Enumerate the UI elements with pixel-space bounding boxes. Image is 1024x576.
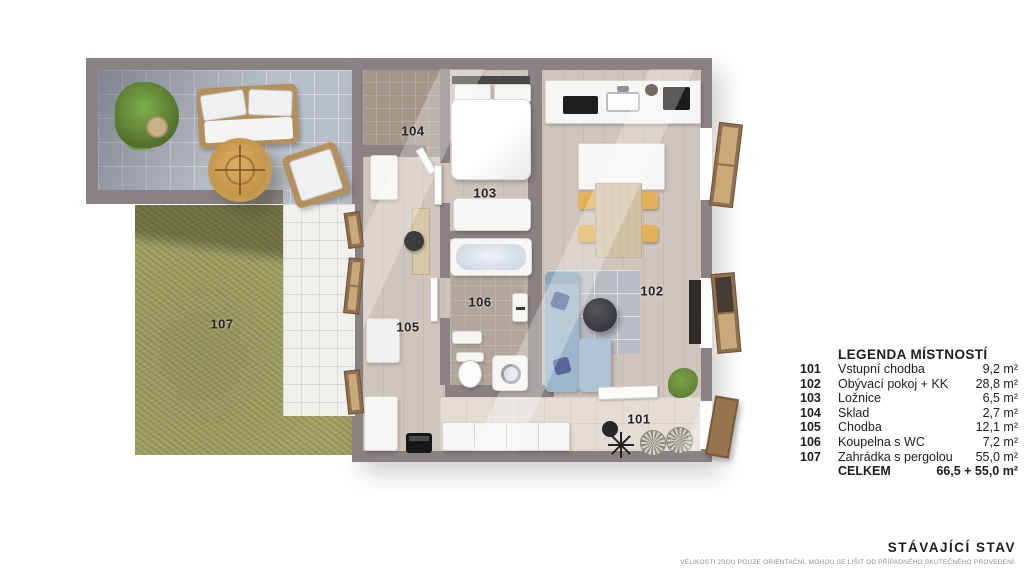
inner-wall xyxy=(440,203,450,278)
room-name: Sklad xyxy=(838,406,983,421)
legend-row: 103 Ložnice 6,5 m² xyxy=(788,391,1018,406)
bathtub-basin xyxy=(456,244,526,270)
living-room-threshold xyxy=(598,385,658,400)
bathtub xyxy=(450,238,532,276)
pouf xyxy=(640,430,666,456)
tv-panel xyxy=(689,280,701,344)
bed-headboard xyxy=(452,76,530,84)
room-area: 9,2 m² xyxy=(983,362,1018,377)
dining-chair xyxy=(578,192,595,209)
sofa-cushion xyxy=(200,89,248,122)
dining-table xyxy=(595,183,642,258)
legend: LEGENDA MÍSTNOSTÍ 101 Vstupní chodba 9,2… xyxy=(788,347,1018,479)
room-number: 105 xyxy=(788,420,838,435)
legend-row: 105 Chodba 12,1 m² xyxy=(788,420,1018,435)
faucet xyxy=(617,86,629,92)
dining-chair xyxy=(641,192,658,209)
dining-chair xyxy=(578,225,595,242)
room-number: 107 xyxy=(788,450,838,465)
room-name: Vstupní chodba xyxy=(838,362,983,377)
inner-wall xyxy=(440,318,450,385)
heater-vent xyxy=(516,307,525,310)
footer: STÁVAJÍCÍ STAV VELIKOSTI JSOU POUZE ORIE… xyxy=(680,540,1016,566)
speaker-face xyxy=(409,436,429,441)
table-ring xyxy=(225,155,255,185)
total-value: 66,5 + 55,0 m² xyxy=(936,464,1018,479)
total-label: CELKEM xyxy=(838,464,936,479)
room-label-107: 107 xyxy=(210,317,233,332)
open-window xyxy=(709,122,743,208)
room-name: Zahrádka s pergolou xyxy=(838,450,976,465)
window-pane xyxy=(718,313,737,349)
bedroom-door xyxy=(434,165,442,205)
bed-bench xyxy=(453,198,531,231)
palm-plant xyxy=(115,82,179,148)
room-name: Obývací pokoj + KK xyxy=(838,377,976,392)
legend-title: LEGENDA MÍSTNOSTÍ xyxy=(838,347,1018,362)
coffee-table xyxy=(583,298,617,332)
room-label-101: 101 xyxy=(627,412,650,427)
room-label-102: 102 xyxy=(640,284,663,299)
window-pane xyxy=(348,374,360,411)
room-number: 101 xyxy=(788,362,838,377)
pouf xyxy=(666,427,693,454)
speaker-box xyxy=(406,433,432,453)
counter-decor xyxy=(645,84,658,96)
washing-machine xyxy=(492,355,528,391)
terrace-left-wall xyxy=(86,58,98,204)
room-name: Chodba xyxy=(838,420,976,435)
sofa-chaise xyxy=(579,338,611,392)
room-area: 7,2 m² xyxy=(983,435,1018,450)
washer-door xyxy=(501,364,521,384)
legend-row: 107 Zahrádka s pergolou 55,0 m² xyxy=(788,450,1018,465)
legend-row: 104 Sklad 2,7 m² xyxy=(788,406,1018,421)
sofa-armrest xyxy=(545,272,579,284)
room-label-105: 105 xyxy=(396,320,419,335)
room-number: 103 xyxy=(788,391,838,406)
plant-pot xyxy=(146,116,168,138)
bed-duvet xyxy=(451,99,531,180)
room-label-106: 106 xyxy=(468,295,491,310)
room-area: 2,7 m² xyxy=(983,406,1018,421)
floor-plan-page: 104 103 106 105 102 101 107 LEGENDA MÍST… xyxy=(0,0,1024,576)
window-pane xyxy=(713,165,733,204)
wardrobe xyxy=(366,318,400,363)
window-pane xyxy=(718,126,738,165)
washbasin xyxy=(452,331,482,344)
room-label-103: 103 xyxy=(473,186,496,201)
room-name: Koupelna s WC xyxy=(838,435,983,450)
room-label-104: 104 xyxy=(401,124,424,139)
bathroom-door xyxy=(430,277,438,322)
floor-plan: 104 103 106 105 102 101 107 xyxy=(86,55,746,475)
window-pane xyxy=(715,276,734,312)
chair-cushion xyxy=(289,148,344,202)
legend-row: 101 Vstupní chodba 9,2 m² xyxy=(788,362,1018,377)
cooktop xyxy=(563,96,598,114)
inner-wall xyxy=(440,69,450,163)
room-number: 104 xyxy=(788,406,838,421)
room-area: 55,0 m² xyxy=(976,450,1018,465)
entry-wardrobe xyxy=(442,422,570,451)
room-area: 6,5 m² xyxy=(983,391,1018,406)
legend-row: 106 Koupelna s WC 7,2 m² xyxy=(788,435,1018,450)
legend-row: 102 Obývací pokoj + KK 28,8 m² xyxy=(788,377,1018,392)
wardrobe xyxy=(364,396,398,451)
window-pane xyxy=(348,216,360,245)
window-pane xyxy=(350,262,360,286)
window-pane xyxy=(348,287,358,311)
black-appliance xyxy=(663,87,690,110)
window-opening xyxy=(700,278,712,348)
room-number: 102 xyxy=(788,377,838,392)
coat-stand-top xyxy=(602,421,618,437)
tall-cabinet xyxy=(370,155,398,200)
top-wall xyxy=(86,58,712,70)
toilet-bowl xyxy=(458,360,482,388)
plan-status-title: STÁVAJÍCÍ STAV xyxy=(680,540,1016,555)
room-area: 28,8 m² xyxy=(976,377,1018,392)
wicker-table xyxy=(208,138,272,202)
disclaimer-text: VELIKOSTI JSOU POUZE ORIENTAČNÍ, MOHOU S… xyxy=(680,559,1016,566)
room-name: Ložnice xyxy=(838,391,983,406)
water-heater xyxy=(512,293,528,322)
storage-floor xyxy=(363,69,440,157)
dining-chair xyxy=(641,225,658,242)
sofa-cushion xyxy=(248,89,293,117)
room-number: 106 xyxy=(788,435,838,450)
room-area: 12,1 m² xyxy=(976,420,1018,435)
desk-chair xyxy=(404,231,424,251)
open-window xyxy=(711,272,742,354)
kitchen-sink xyxy=(606,92,640,112)
legend-total-row: CELKEM 66,5 + 55,0 m² xyxy=(788,464,1018,479)
